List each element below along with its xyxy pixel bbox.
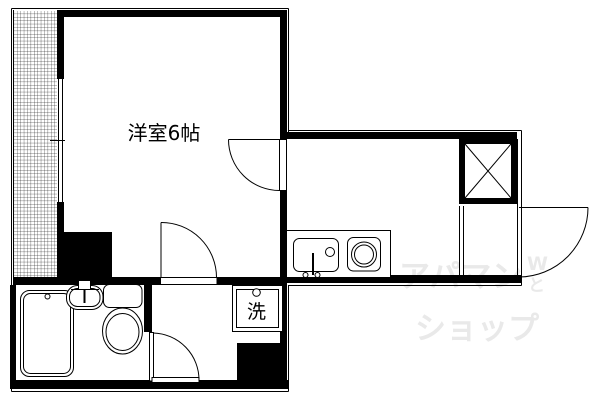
bathtub-inner — [24, 294, 71, 374]
bathroom — [21, 279, 143, 377]
room-hall-door-arc — [161, 222, 217, 277]
laundry-hose-circle — [253, 289, 261, 297]
balcony — [14, 11, 57, 277]
kitchen-counter — [287, 231, 391, 278]
sink-drain — [326, 248, 335, 257]
wall-bath-right — [144, 285, 152, 332]
room-hall-door — [161, 222, 218, 284]
wall-mass-left — [57, 232, 112, 278]
floor-plan-page: アパマン W と ショップ — [0, 0, 600, 400]
room-kitchen-door-arc — [229, 140, 281, 191]
stove-burner-inner — [355, 245, 374, 264]
wall-top — [57, 10, 287, 17]
balcony-hatch — [14, 11, 57, 277]
watermark-mark-to: と — [528, 276, 545, 296]
main-room-label: 洋室6帖 — [128, 121, 201, 145]
watermark: アパマン W と ショップ — [399, 253, 548, 347]
wall-room-right-lower — [280, 190, 287, 283]
wall-room-right-upper — [280, 10, 287, 139]
toilet-tank — [104, 285, 143, 308]
bathroom-door-arc — [154, 333, 200, 380]
wall-room-bottom-right — [217, 277, 287, 285]
sink-knob-left — [303, 273, 308, 278]
floor-plan: アパマン W と ショップ — [0, 0, 600, 400]
bathroom-door-leaf — [150, 333, 154, 382]
room-kitchen-door — [229, 140, 287, 191]
bathroom-door-threshold — [152, 378, 199, 383]
room-kitchen-door-jamb — [280, 140, 287, 191]
bathroom-door — [150, 333, 200, 383]
wall-balcony-lower — [57, 202, 64, 232]
closet-x-box — [459, 138, 517, 204]
basin-faucet — [79, 281, 91, 290]
wall-bath-left — [10, 285, 16, 389]
toilet-bowl-inner — [106, 314, 139, 351]
watermark-line2: ショップ — [415, 311, 540, 347]
bathtub-drain — [45, 294, 50, 299]
wall-kitchen-top — [287, 132, 517, 139]
wall-balcony-upper — [57, 10, 64, 79]
room-hall-door-jamb — [161, 278, 218, 285]
sink-knob-right — [315, 273, 320, 278]
shaft-block — [237, 343, 280, 384]
laundry-label: 洗 — [247, 301, 266, 323]
